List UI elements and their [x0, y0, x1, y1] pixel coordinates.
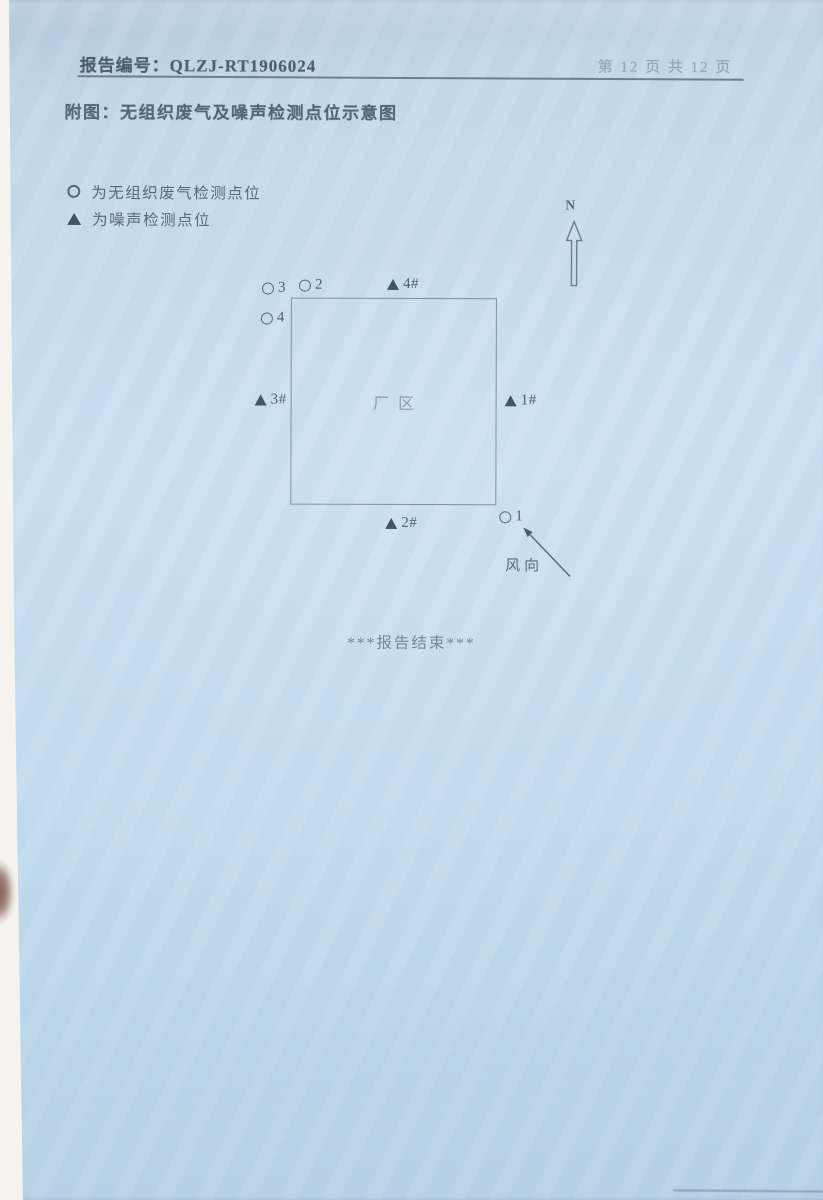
legend-label: 为噪声检测点位	[92, 207, 211, 229]
noise-point-icon	[385, 518, 397, 529]
report-page: 报告编号：QLZJ-RT1906024 第 12 页 共 12 页 附图：无组织…	[0, 0, 823, 1200]
background-blob	[0, 860, 14, 924]
legend-label: 为无组织废气检测点位	[91, 180, 261, 203]
gas-point-3: 3	[262, 280, 286, 297]
legend: 为无组织废气检测点位 为噪声检测点位	[67, 178, 261, 233]
noise-point-2: 2#	[385, 515, 417, 532]
gas-point-icon	[299, 279, 311, 291]
noise-point-4: 4#	[387, 276, 419, 293]
document-photo: 报告编号：QLZJ-RT1906024 第 12 页 共 12 页 附图：无组织…	[0, 0, 823, 1200]
wind-direction-label: 风向	[505, 554, 543, 575]
gas-point-1: 1	[499, 508, 523, 525]
compass-north-label: N	[565, 198, 575, 214]
gas-point-2: 2	[299, 277, 323, 294]
report-number: 报告编号：QLZJ-RT1906024	[80, 51, 317, 77]
figure-title: 附图：无组织废气及噪声检测点位示意图	[64, 98, 397, 124]
point-label: 3	[278, 280, 286, 297]
noise-point-icon	[387, 279, 399, 290]
gas-point-4: 4	[261, 310, 285, 327]
point-label: 4#	[403, 276, 419, 293]
report-end-note: ***报告结束***	[0, 630, 823, 655]
page-content: 报告编号：QLZJ-RT1906024 第 12 页 共 12 页 附图：无组织…	[0, 0, 823, 1200]
point-label: 2	[315, 277, 323, 294]
noise-point-icon	[67, 212, 81, 224]
legend-item-noise: 为噪声检测点位	[67, 205, 261, 233]
legend-item-gas: 为无组织废气检测点位	[67, 178, 261, 206]
point-label: 4	[277, 310, 285, 327]
gas-point-icon	[499, 511, 511, 523]
point-label: 1	[515, 508, 523, 525]
point-label: 2#	[401, 515, 417, 532]
north-arrow-icon	[561, 217, 587, 289]
noise-point-3: 3#	[255, 392, 287, 409]
point-label: 3#	[271, 392, 287, 409]
report-number-value: QLZJ-RT1906024	[170, 56, 317, 75]
noise-point-icon	[505, 395, 517, 406]
gas-point-icon	[67, 185, 80, 198]
gas-point-icon	[261, 312, 273, 324]
plant-area-label: 厂区	[291, 390, 497, 415]
noise-point-icon	[255, 395, 267, 406]
noise-point-1: 1#	[505, 392, 537, 409]
gas-point-icon	[262, 282, 274, 294]
report-number-label: 报告编号：	[80, 56, 170, 75]
point-label: 1#	[521, 392, 537, 409]
page-number: 第 12 页 共 12 页	[598, 56, 733, 77]
